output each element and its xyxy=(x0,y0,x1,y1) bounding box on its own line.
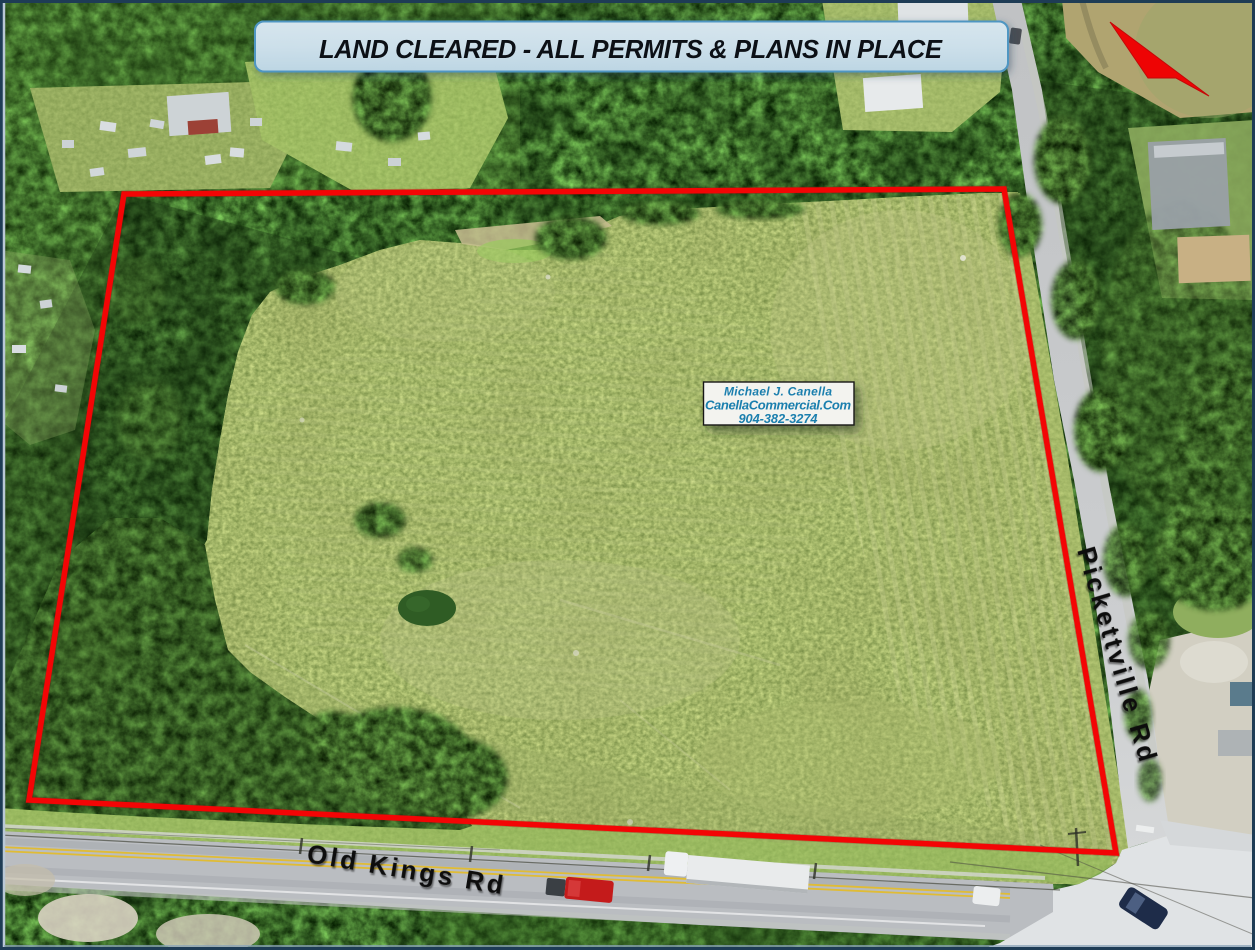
svg-text:Michael J. Canella: Michael J. Canella xyxy=(724,385,832,399)
svg-text:904-382-3274: 904-382-3274 xyxy=(739,411,818,426)
svg-text:LAND CLEARED - ALL PERMITS & P: LAND CLEARED - ALL PERMITS & PLANS IN PL… xyxy=(319,36,943,64)
